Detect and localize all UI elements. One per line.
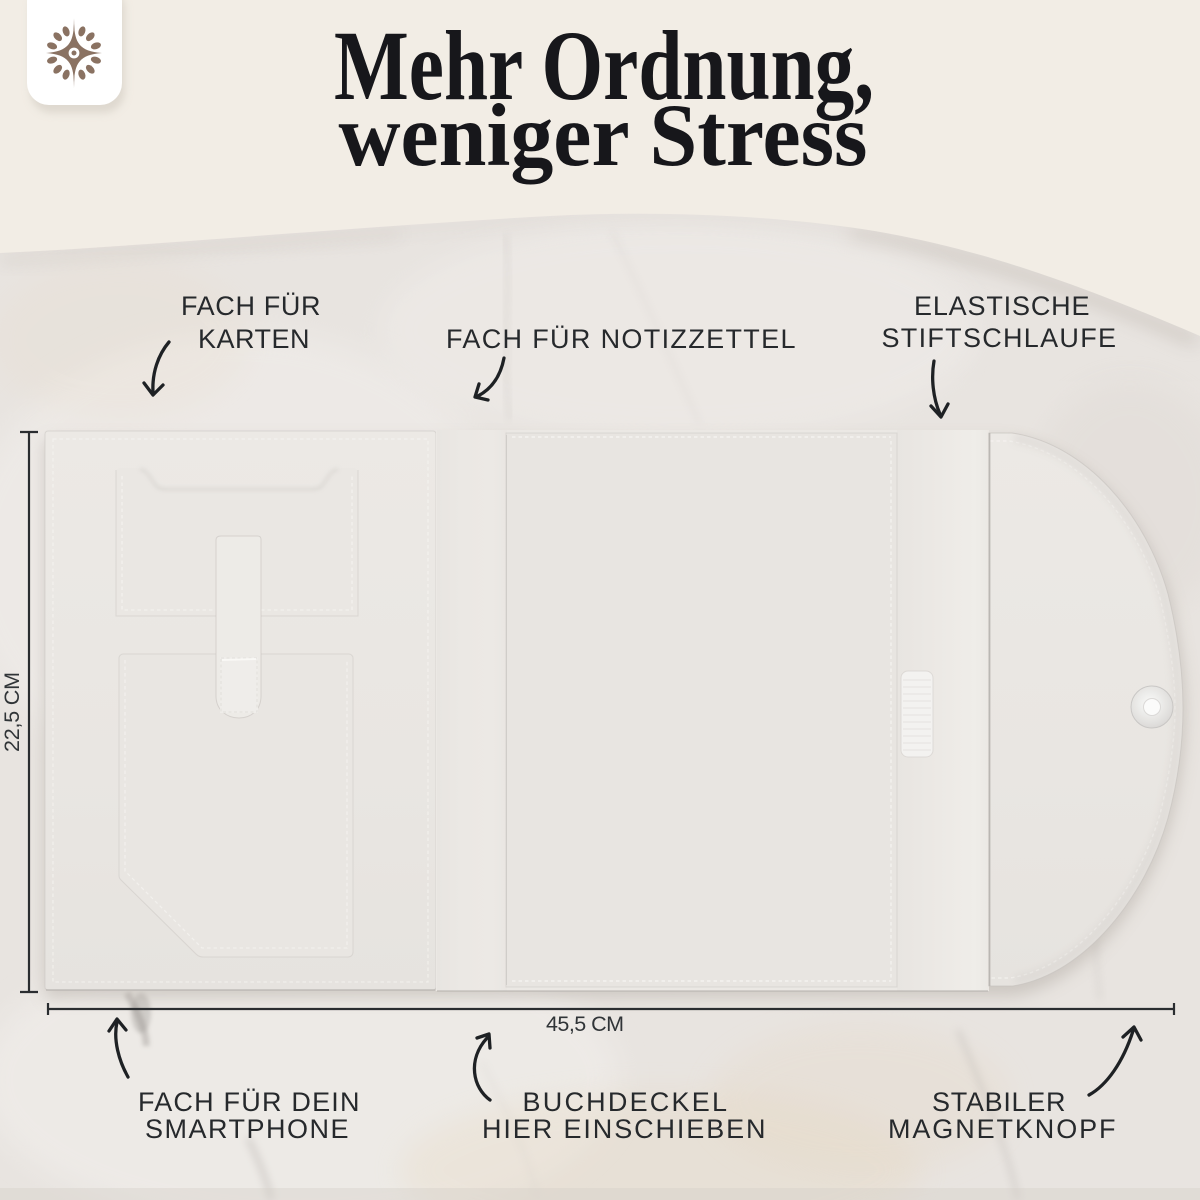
svg-text:22,5 CM: 22,5 CM	[0, 670, 24, 752]
svg-text:STIFTSCHLAUFE: STIFTSCHLAUFE	[882, 323, 1119, 353]
svg-text:STABILER: STABILER	[932, 1087, 1068, 1117]
svg-text:FACH FÜR DEIN: FACH FÜR DEIN	[138, 1087, 362, 1117]
svg-text:HIER EINSCHIEBEN: HIER EINSCHIEBEN	[482, 1114, 768, 1144]
svg-text:weniger Stress: weniger Stress	[339, 87, 868, 185]
svg-text:MAGNETKNOPF: MAGNETKNOPF	[888, 1114, 1118, 1144]
svg-text:45,5 CM: 45,5 CM	[546, 1012, 626, 1036]
svg-text:KARTEN: KARTEN	[198, 324, 312, 354]
svg-text:BUCHDECKEL: BUCHDECKEL	[523, 1087, 730, 1117]
svg-text:FACH FÜR NOTIZZETTEL: FACH FÜR NOTIZZETTEL	[446, 324, 798, 354]
svg-text:ELASTISCHE: ELASTISCHE	[914, 291, 1092, 321]
svg-text:FACH FÜR: FACH FÜR	[181, 291, 323, 321]
svg-text:SMARTPHONE: SMARTPHONE	[145, 1114, 351, 1144]
